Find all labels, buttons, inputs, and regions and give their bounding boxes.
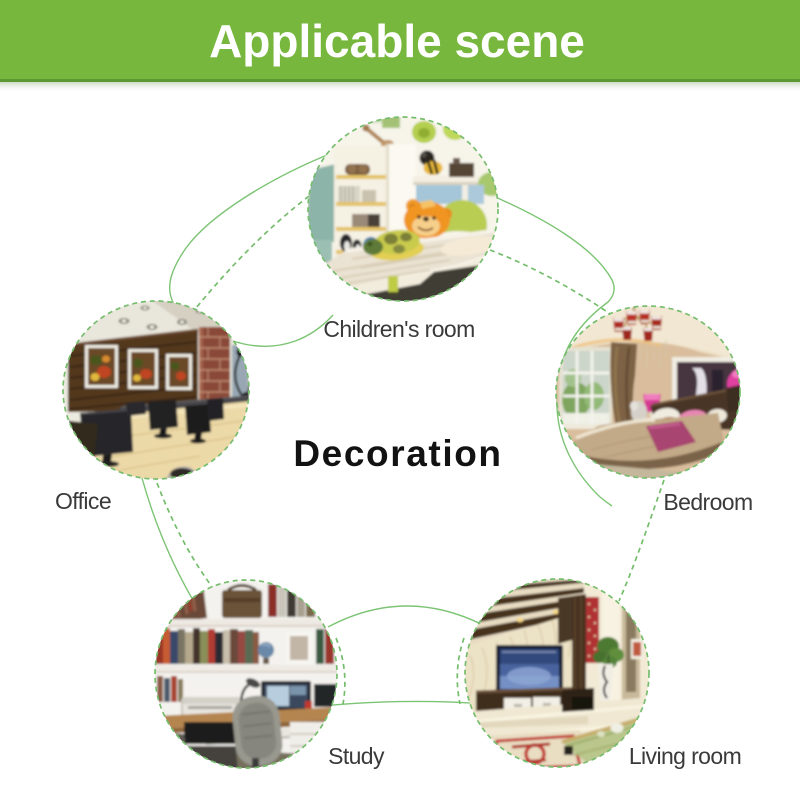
- svg-text:Study: Study: [328, 743, 385, 769]
- svg-text:Applicable scene: Applicable scene: [209, 15, 585, 67]
- svg-text:Living room: Living room: [629, 743, 741, 769]
- svg-text:Decoration: Decoration: [293, 433, 502, 474]
- svg-text:Children's room: Children's room: [323, 316, 474, 342]
- svg-text:Bedroom: Bedroom: [663, 489, 752, 515]
- svg-text:Office: Office: [55, 488, 111, 514]
